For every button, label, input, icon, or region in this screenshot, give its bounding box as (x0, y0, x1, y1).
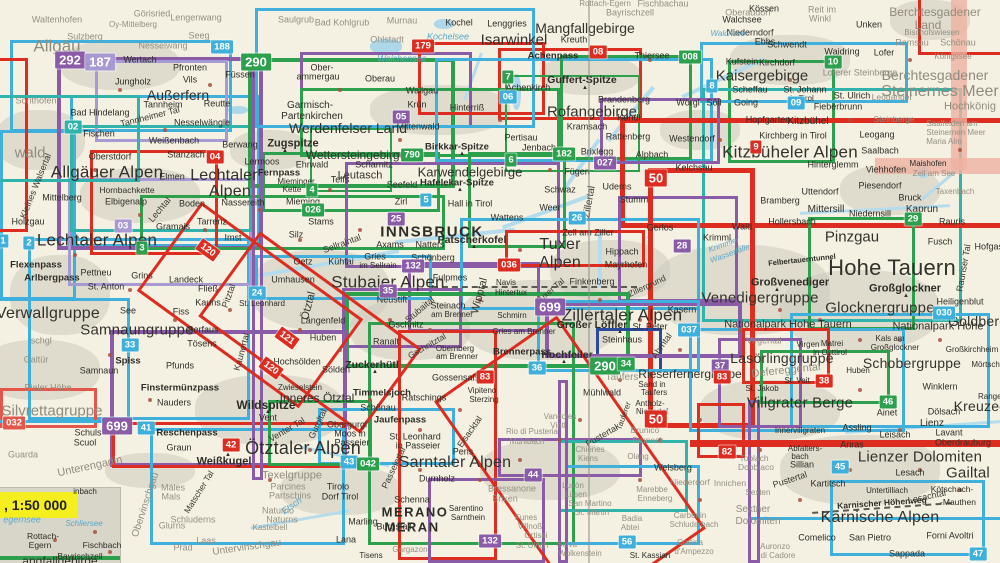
map-label: Oberstdorf (89, 153, 132, 162)
hut-dot (958, 148, 962, 152)
map-label: Leogang (859, 131, 894, 140)
map-label: Leisach (879, 431, 910, 440)
map-label: Sillian (790, 461, 814, 470)
map-label: Bayrischzell (606, 9, 654, 18)
map-label: Marling (348, 518, 378, 527)
map-label: Fischen (83, 130, 115, 139)
map-label: Nassereith (221, 199, 264, 208)
map-label: Lusòn (562, 482, 584, 490)
map-label: Murnau (387, 17, 418, 26)
sheet-number-badge: 35 (380, 285, 397, 298)
map-label: Mangfallgebirge (535, 21, 635, 35)
map-label: Krün (407, 101, 426, 110)
sheet-number-badge: 3 (136, 242, 147, 255)
map-label: Taxenbach (936, 188, 975, 196)
map-label: Weißenbach (149, 137, 199, 146)
map-label: Taufers (606, 373, 639, 383)
map-label: Going (734, 99, 758, 108)
alpine-map-sheet-index: , 1:50 000 WaltenhofenAllgäuOy-Mittelber… (0, 0, 1000, 563)
map-label: Achenpass (528, 51, 579, 61)
map-label: Reutte (204, 100, 231, 109)
map-label: Spiss (115, 356, 140, 366)
map-label: Uderns (602, 183, 631, 192)
map-label: Schliersee (65, 520, 102, 528)
map-label: Boden (179, 200, 205, 209)
sheet-number-badge: 26 (569, 212, 586, 225)
map-label: Kössen (749, 5, 779, 14)
sheet-number-badge: 02 (65, 121, 82, 134)
sheet-number-badge: 83 (477, 371, 494, 384)
map-label: Sexten (746, 489, 771, 497)
map-label: San Pietro (849, 534, 891, 543)
map-label: Großglockner (871, 344, 919, 352)
map-label: d'Ampezzo (674, 548, 713, 556)
map-label: Vandoies (544, 413, 577, 421)
map-label: Heiligenblut (936, 298, 983, 307)
map-label: Silz (289, 231, 304, 240)
map-label: Wolkenstein (558, 550, 601, 558)
map-label: Gries am Brenner (492, 328, 555, 336)
sheet-number-badge: 29 (905, 213, 922, 226)
sheet-number-badge: 036 (498, 259, 520, 272)
map-label: Tarrenz (197, 218, 227, 227)
map-label: MERANO (382, 506, 449, 519)
map-label: Berchtesgadener (882, 68, 989, 82)
hut-dot (518, 248, 522, 252)
map-label: St. Anton (88, 283, 125, 292)
map-label: Sarntaler Alpen (399, 455, 511, 471)
hut-dot (698, 498, 702, 502)
map-label: Umhausen (271, 276, 315, 285)
map-label: Stanzach (167, 151, 205, 160)
hut-dot (598, 298, 602, 302)
map-label: Kühtai (328, 258, 354, 267)
map-label: Viehhofen (866, 166, 906, 175)
map-label: Schwaz (544, 186, 576, 195)
map-label: ▲ (617, 329, 623, 335)
map-label: Isarwinkel (481, 33, 548, 48)
hut-dot (118, 88, 122, 92)
map-label: Bressanone (488, 485, 536, 494)
map-label: Serfaus (187, 326, 218, 335)
map-label: Texelgruppe (262, 471, 322, 482)
map-label: Oetz (293, 258, 312, 267)
map-label: Gramais (156, 223, 190, 232)
map-label: Niederdorf (670, 478, 710, 487)
map-label: Kasern (668, 306, 697, 315)
hut-dot (778, 308, 782, 312)
hut-dot (138, 213, 142, 217)
map-label: Schuls (74, 429, 101, 438)
map-label: Kauns (195, 299, 221, 308)
sheet-number-badge: 6 (505, 154, 516, 167)
sheet-number-badge: 4 (306, 184, 317, 197)
map-label: Sarentino (449, 505, 483, 513)
map-label: Waltenhofen (32, 16, 82, 25)
map-label: Weißkugel (197, 457, 252, 468)
map-label: Stumm (620, 196, 649, 205)
sheet-number-badge: 790 (401, 149, 423, 162)
sheet-number-badge: 10 (825, 56, 842, 69)
map-label: Samnaungruppe (80, 323, 194, 338)
map-label: Füssen (225, 71, 255, 80)
map-label: Villgrater Berge (747, 396, 853, 411)
sheet-number-badge: 42 (223, 439, 240, 452)
map-label: Wallgau (406, 87, 438, 96)
map-label: Walchensee (377, 55, 426, 64)
map-label: Lofer (874, 49, 895, 58)
sheet-number-badge: 699 (535, 299, 565, 316)
map-label: Hohe Tauern (828, 257, 956, 279)
map-label: Rio di Pusteria (506, 428, 558, 436)
map-label: Brixen (492, 495, 518, 504)
sheet-number-badge: 132 (402, 260, 424, 273)
hut-dot (718, 138, 722, 142)
map-label: Nesselwängle (174, 119, 230, 128)
sheet-number-badge: 45 (832, 461, 849, 474)
map-label: Schenna (394, 496, 430, 505)
hut-dot (548, 168, 552, 172)
sheet-number-badge: 7 (502, 71, 513, 84)
map-label: Steinernen Meer (926, 129, 985, 137)
map-label: Navis (496, 279, 516, 287)
map-label: Längenfeld (301, 317, 346, 326)
hut-dot (698, 418, 702, 422)
map-label: Werdenfelser Land (289, 121, 407, 135)
map-label: Thiersee (634, 52, 669, 61)
map-label: Mayrhofen (605, 261, 648, 270)
hut-dot (638, 478, 642, 482)
map-label: Oy-Mittelberg (109, 21, 157, 29)
map-label: Villnoß (518, 523, 542, 531)
map-label: Sappada (889, 550, 925, 559)
map-label: Grins (131, 272, 153, 281)
sheet-number-badge: 699 (102, 418, 132, 435)
map-label: Nesselwang (138, 42, 187, 51)
map-label: Cortina (677, 539, 703, 547)
hut-dot (428, 328, 432, 332)
map-label: Kirchberg in Tirol (759, 132, 827, 141)
sheet-number-badge: 06 (500, 91, 517, 104)
map-label: Matrei (821, 340, 843, 348)
sheet-number-badge: 03 (115, 220, 132, 233)
hut-dot (328, 188, 332, 192)
map-label: Zell am See (913, 170, 956, 178)
map-label: Sarnthein (451, 514, 485, 522)
map-label: Tisens (359, 552, 382, 560)
sheet-number-badge: 132 (479, 535, 501, 548)
map-label: Gschnitz (388, 321, 423, 330)
hut-dot (338, 88, 342, 92)
map-label: Guffert-Spitze (547, 75, 616, 86)
map-label: St. Ulrich (516, 542, 548, 550)
map-label: Berwang (222, 141, 258, 150)
map-label: Guarda (8, 451, 38, 460)
sheet-number-badge: 2 (23, 237, 34, 250)
map-label: Verwallgruppe (0, 306, 100, 322)
map-label: Glurns (159, 522, 186, 531)
map-label: Fischbachau (637, 0, 688, 9)
map-label: Selva (557, 541, 577, 549)
map-label: Vipiteno (468, 387, 497, 395)
hut-dot (558, 438, 562, 442)
hut-dot (163, 128, 167, 132)
map-label: Hollersbach (768, 218, 816, 227)
map-label: Elbigenalp (105, 198, 147, 207)
hut-dot (203, 228, 207, 232)
map-label: ▲ (372, 369, 378, 375)
map-label: egernsee (3, 516, 41, 525)
hut-dot (518, 458, 522, 462)
hut-dot (578, 418, 582, 422)
map-label: Reschenpass (156, 428, 217, 438)
sheet-number-badge: 1 (0, 235, 9, 248)
map-label: Durnholz (419, 475, 455, 484)
sheet-number-badge: 008 (679, 51, 701, 64)
map-label: Kette (283, 186, 302, 194)
hut-dot (848, 118, 852, 122)
map-label: Kartitsch (810, 480, 845, 489)
map-label: Kramsach (567, 123, 608, 132)
map-label: Nationalpark Hohe (892, 322, 983, 333)
sheet-number-badge: 82 (719, 446, 736, 459)
map-label: Innichen (714, 479, 746, 488)
map-label: Unken (856, 21, 882, 30)
map-label: Westendorf (669, 135, 715, 144)
map-label: Hopfgarten (746, 116, 791, 125)
map-label: Lienzer Dolomiten (858, 450, 982, 465)
map-label: Saalfelden am (926, 120, 977, 128)
sheet-number-badge: 182 (553, 148, 575, 161)
map-label: Walchsee (711, 30, 746, 38)
map-label: Ohlstadt (370, 36, 404, 45)
map-label: Weer (539, 204, 560, 213)
sheet-number-badge: 290 (590, 358, 620, 375)
map-label: Sulzberg (67, 33, 103, 42)
map-label: Tösens (187, 340, 217, 349)
map-label: ▲ (265, 409, 271, 415)
map-label: Hochfeiler (541, 350, 592, 361)
map-label: Gossensaß (432, 374, 478, 383)
map-label: Oberau (365, 75, 395, 84)
map-label: See (120, 307, 136, 316)
map-label: Imst (225, 234, 242, 243)
map-label: Steinberge (873, 115, 914, 124)
map-label: Fusch (928, 238, 953, 247)
map-label: Bieler Höhe (24, 384, 71, 393)
map-label: Dobbiaco (738, 463, 774, 472)
sheet-number-badge: 030 (933, 307, 955, 320)
map-label: Ranalt (373, 338, 399, 347)
map-label: Lenggries (487, 20, 527, 29)
hut-dot (908, 58, 912, 62)
map-label: Mals (161, 493, 180, 502)
sheet-number-badge: 04 (207, 151, 224, 164)
hut-dot (938, 338, 942, 342)
map-label: Arlbergpass (24, 273, 79, 283)
map-label: Galtür (24, 356, 49, 365)
map-label: Rauris (939, 218, 965, 227)
sheet-number-badge: 44 (525, 469, 542, 482)
map-label: ▲ (903, 293, 909, 299)
map-label: Kreuzeckgruppe (954, 399, 1000, 413)
map-label: St. Ulrich (834, 92, 871, 101)
map-label: San Martino (568, 500, 611, 508)
map-label: Bad Kohlgrub (315, 19, 370, 28)
map-label: Lesach (895, 469, 924, 478)
map-label: Passeier (334, 439, 369, 448)
legend-scale-text: , 1:50 000 (4, 497, 67, 513)
map-label: Gargazon (392, 546, 427, 554)
map-label: Gerlos (647, 224, 674, 233)
map-label: Garmisch- (287, 101, 333, 111)
map-label: Scharnitz (355, 161, 393, 170)
map-label: Görisried (134, 10, 171, 19)
map-label: ▲ (774, 287, 780, 293)
hut-dot (298, 328, 302, 332)
map-label: Ramsau (895, 39, 929, 48)
map-label: Egern (29, 541, 52, 550)
map-label: Oberdrauburg (935, 439, 991, 448)
map-label: ▲ (471, 244, 477, 250)
hut-dot (108, 550, 112, 554)
map-label: Inneres Ötztal (280, 392, 355, 404)
map-label: Niedernsill (849, 210, 891, 219)
map-label: Schönau (940, 39, 976, 48)
map-label: Ratschings (402, 394, 447, 403)
map-label: Uttendorf (801, 188, 838, 197)
map-label: St. Leonhard (239, 300, 285, 308)
map-label: Olang (627, 453, 648, 461)
hut-dot (128, 288, 132, 292)
map-label: Fulpmes (433, 274, 468, 283)
map-label: Hippach (605, 248, 638, 257)
map-label: Flexenpass (10, 260, 62, 270)
map-label: Allgäuer Alpen (51, 164, 163, 181)
map-label: Maishofen (910, 160, 947, 168)
hut-dot (73, 253, 77, 257)
map-label: Sterzing (469, 396, 498, 404)
map-label: Birkkar-Spitze (425, 142, 489, 152)
map-label: Winklern (922, 383, 957, 392)
sheet-number-badge: 042 (357, 458, 379, 471)
hut-dot (798, 498, 802, 502)
map-label: Zwieselstein (278, 384, 322, 392)
map-label: Mittelberg (42, 194, 82, 203)
sheet-number-badge: 50 (645, 411, 667, 428)
hut-dot (678, 348, 682, 352)
map-label: Telfs (331, 176, 350, 185)
map-label: Fischbach (83, 541, 122, 550)
map-label: Seeg (188, 32, 209, 41)
map-label: Piesendorf (858, 182, 901, 191)
sheet-number-badge: 037 (678, 324, 700, 337)
sheet-number-badge: 032 (3, 417, 25, 430)
map-sheet-outline (748, 400, 760, 563)
map-label: Comelico (798, 534, 836, 543)
sheet-number-badge: 24 (249, 287, 266, 300)
map-label: Zirl (395, 198, 408, 207)
map-label: Prad (173, 544, 192, 553)
map-label: Finstermünzpass (141, 383, 219, 393)
map-label: Axams (376, 241, 404, 250)
sheet-number-badge: 292 (55, 52, 85, 69)
sheet-number-badge: 47 (970, 548, 987, 561)
map-label: Marebbe (636, 486, 668, 494)
map-label: Kastelbell (253, 524, 288, 532)
hut-dot (108, 353, 112, 357)
hut-dot (758, 448, 762, 452)
map-label: Schluderbach (670, 521, 719, 529)
map-label: Untertilliach (866, 487, 908, 495)
map-label: Steinernes Meer (881, 84, 998, 100)
sheet-number-badge: 08 (590, 46, 607, 59)
map-label: Finkenberg (569, 278, 614, 287)
map-label: Forni Avoltri (926, 532, 973, 541)
map-label: Mörtschach (971, 361, 1000, 369)
map-label: Brixlegg (581, 148, 614, 157)
map-label: Hornbachkette (99, 186, 154, 195)
map-label: Schobergruppe (863, 356, 961, 370)
map-label: Huben (310, 334, 337, 343)
map-label: Nationalpark Hohe Tauern (724, 320, 852, 331)
map-label: ▲ (459, 151, 465, 157)
sheet-number-badge: 8 (706, 80, 717, 93)
map-label: Söll (706, 99, 721, 108)
map-label: Mittenwald (396, 123, 439, 132)
sheet-number-badge: 56 (619, 536, 636, 549)
map-label: Lavant (935, 429, 962, 438)
map-label: Pfronten (173, 64, 207, 73)
sheet-number-badge: 25 (388, 213, 405, 226)
map-label: Tuxer (539, 237, 580, 253)
map-label: ▲ (457, 187, 463, 193)
map-label: Stams (308, 218, 334, 227)
sheet-number-badge: 38 (816, 375, 833, 388)
map-label: Bramberg (760, 197, 800, 206)
sheet-number-badge: 026 (302, 204, 324, 217)
map-label: Fiss (173, 308, 190, 317)
sheet-number-badge: 43 (341, 456, 358, 469)
sheet-number-badge: 33 (122, 339, 139, 352)
sheet-number-badge: 290 (241, 54, 271, 71)
map-label: Alpbach (636, 151, 669, 160)
hut-dot (858, 338, 862, 342)
map-label: ▲ (282, 148, 288, 154)
map-label: Ehrwald (296, 161, 329, 170)
map-label: Enneberg (638, 495, 673, 503)
map-label: Hinterriß (450, 104, 485, 113)
map-label: angfallgebirge (22, 555, 97, 563)
map-label: Fieberbrunn (814, 103, 863, 112)
map-label: Chienes (575, 446, 604, 454)
hut-dot (93, 530, 97, 534)
map-label: Ischgl (28, 337, 52, 346)
sheet-number-badge: 09 (788, 97, 805, 110)
map-label: Dolomiten (735, 517, 780, 527)
map-label: Elmen (159, 173, 185, 182)
map-label: Kitzbühel (787, 117, 828, 127)
map-label: Lechtaler (190, 168, 258, 184)
map-label: Maria Alm (926, 138, 962, 146)
map-label: Abtei (621, 524, 639, 532)
map-label: Virgental (746, 337, 781, 346)
map-label: Lengenwang (170, 14, 222, 23)
map-label: Sonthofen (15, 97, 56, 106)
hut-dot (478, 478, 482, 482)
hut-dot (398, 138, 402, 142)
map-label: Hochsölden (273, 358, 321, 367)
